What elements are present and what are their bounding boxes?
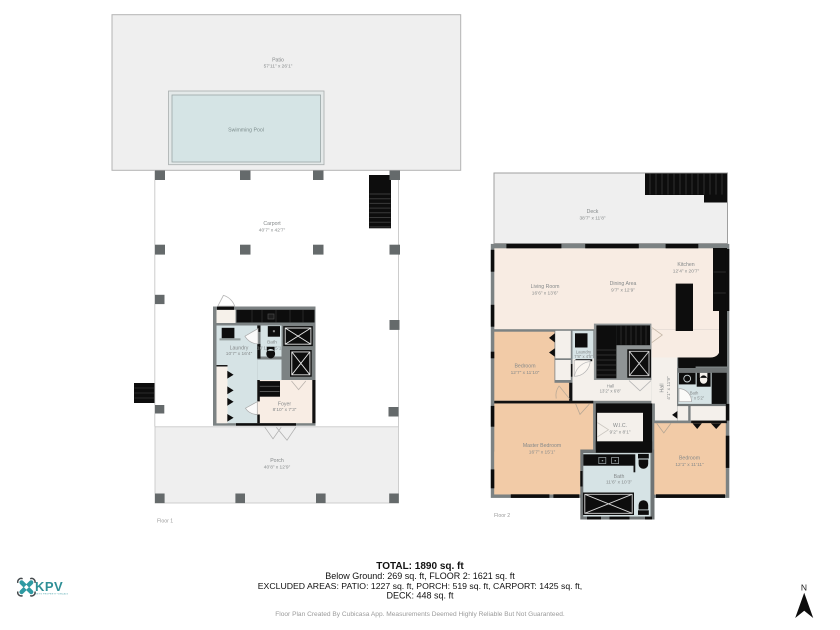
svg-text:Living Room: Living Room <box>531 284 560 290</box>
svg-text:Bath: Bath <box>267 340 277 346</box>
svg-text:11’6” x 10’3”: 11’6” x 10’3” <box>606 479 632 485</box>
svg-text:N: N <box>801 583 807 593</box>
svg-text:40’8” x 12’9”: 40’8” x 12’9” <box>264 464 291 470</box>
svg-text:38’7” x 11’8”: 38’7” x 11’8” <box>579 216 605 222</box>
svg-text:KEYS PROPERTY VISUALS: KEYS PROPERTY VISUALS <box>36 592 69 595</box>
svg-text:Bath: Bath <box>614 474 625 480</box>
svg-text:Carport: Carport <box>263 221 281 227</box>
svg-text:12’4” x 20’7”: 12’4” x 20’7” <box>673 269 700 275</box>
svg-text:9’7” x 12’9”: 9’7” x 12’9” <box>611 288 635 294</box>
svg-text:Floor 2: Floor 2 <box>494 513 510 519</box>
svg-text:KPV: KPV <box>35 579 63 594</box>
svg-text:Laundry: Laundry <box>230 345 249 351</box>
svg-text:40’7” x 42’7”: 40’7” x 42’7” <box>259 228 286 234</box>
svg-text:Patio: Patio <box>272 58 284 64</box>
svg-text:Hall: Hall <box>660 384 666 393</box>
svg-text:10’7” x 16’4”: 10’7” x 16’4” <box>226 351 253 357</box>
svg-text:12’7” x 11’10”: 12’7” x 11’10” <box>511 370 540 376</box>
svg-text:Swimming Pool: Swimming Pool <box>228 128 264 134</box>
svg-text:16’7” x 15’1”: 16’7” x 15’1” <box>529 450 556 456</box>
svg-text:Bedroom: Bedroom <box>679 456 700 462</box>
svg-text:Master Bedroom: Master Bedroom <box>523 443 561 449</box>
svg-text:EXCLUDED AREAS: PATIO: 1227 sq: EXCLUDED AREAS: PATIO: 1227 sq. ft, PORC… <box>258 581 582 591</box>
svg-text:Foyer: Foyer <box>278 401 292 407</box>
svg-text:DECK: 448 sq. ft: DECK: 448 sq. ft <box>386 591 454 601</box>
svg-text:Porch: Porch <box>270 458 284 464</box>
svg-text:Floor Plan Created By Cubicasa: Floor Plan Created By Cubicasa App. Meas… <box>275 611 565 618</box>
svg-text:W.I.C.: W.I.C. <box>613 423 627 429</box>
svg-text:Bedroom: Bedroom <box>514 364 535 370</box>
svg-text:Deck: Deck <box>587 209 599 215</box>
svg-text:Dining Area: Dining Area <box>610 281 637 287</box>
svg-text:7’8” x 4’5”: 7’8” x 4’5” <box>574 354 593 359</box>
svg-text:16’6” x 13’6”: 16’6” x 13’6” <box>532 291 559 297</box>
svg-text:9’2” x 8’1”: 9’2” x 8’1” <box>609 430 630 436</box>
svg-text:Floor 1: Floor 1 <box>157 519 173 525</box>
svg-text:12’1” x 11’11”: 12’1” x 11’11” <box>675 462 704 468</box>
svg-text:13’2” x 6’8”: 13’2” x 6’8” <box>600 388 622 393</box>
svg-text:8’10” x 7’3”: 8’10” x 7’3” <box>273 407 297 413</box>
svg-text:57’11” x 26’1”: 57’11” x 26’1” <box>264 63 293 69</box>
svg-text:4’1” x 11’9”: 4’1” x 11’9” <box>666 376 672 400</box>
svg-text:Kitchen: Kitchen <box>677 262 694 268</box>
svg-text:Below Ground: 269 sq. ft, FLOO: Below Ground: 269 sq. ft, FLOOR 2: 1621 … <box>325 571 515 581</box>
